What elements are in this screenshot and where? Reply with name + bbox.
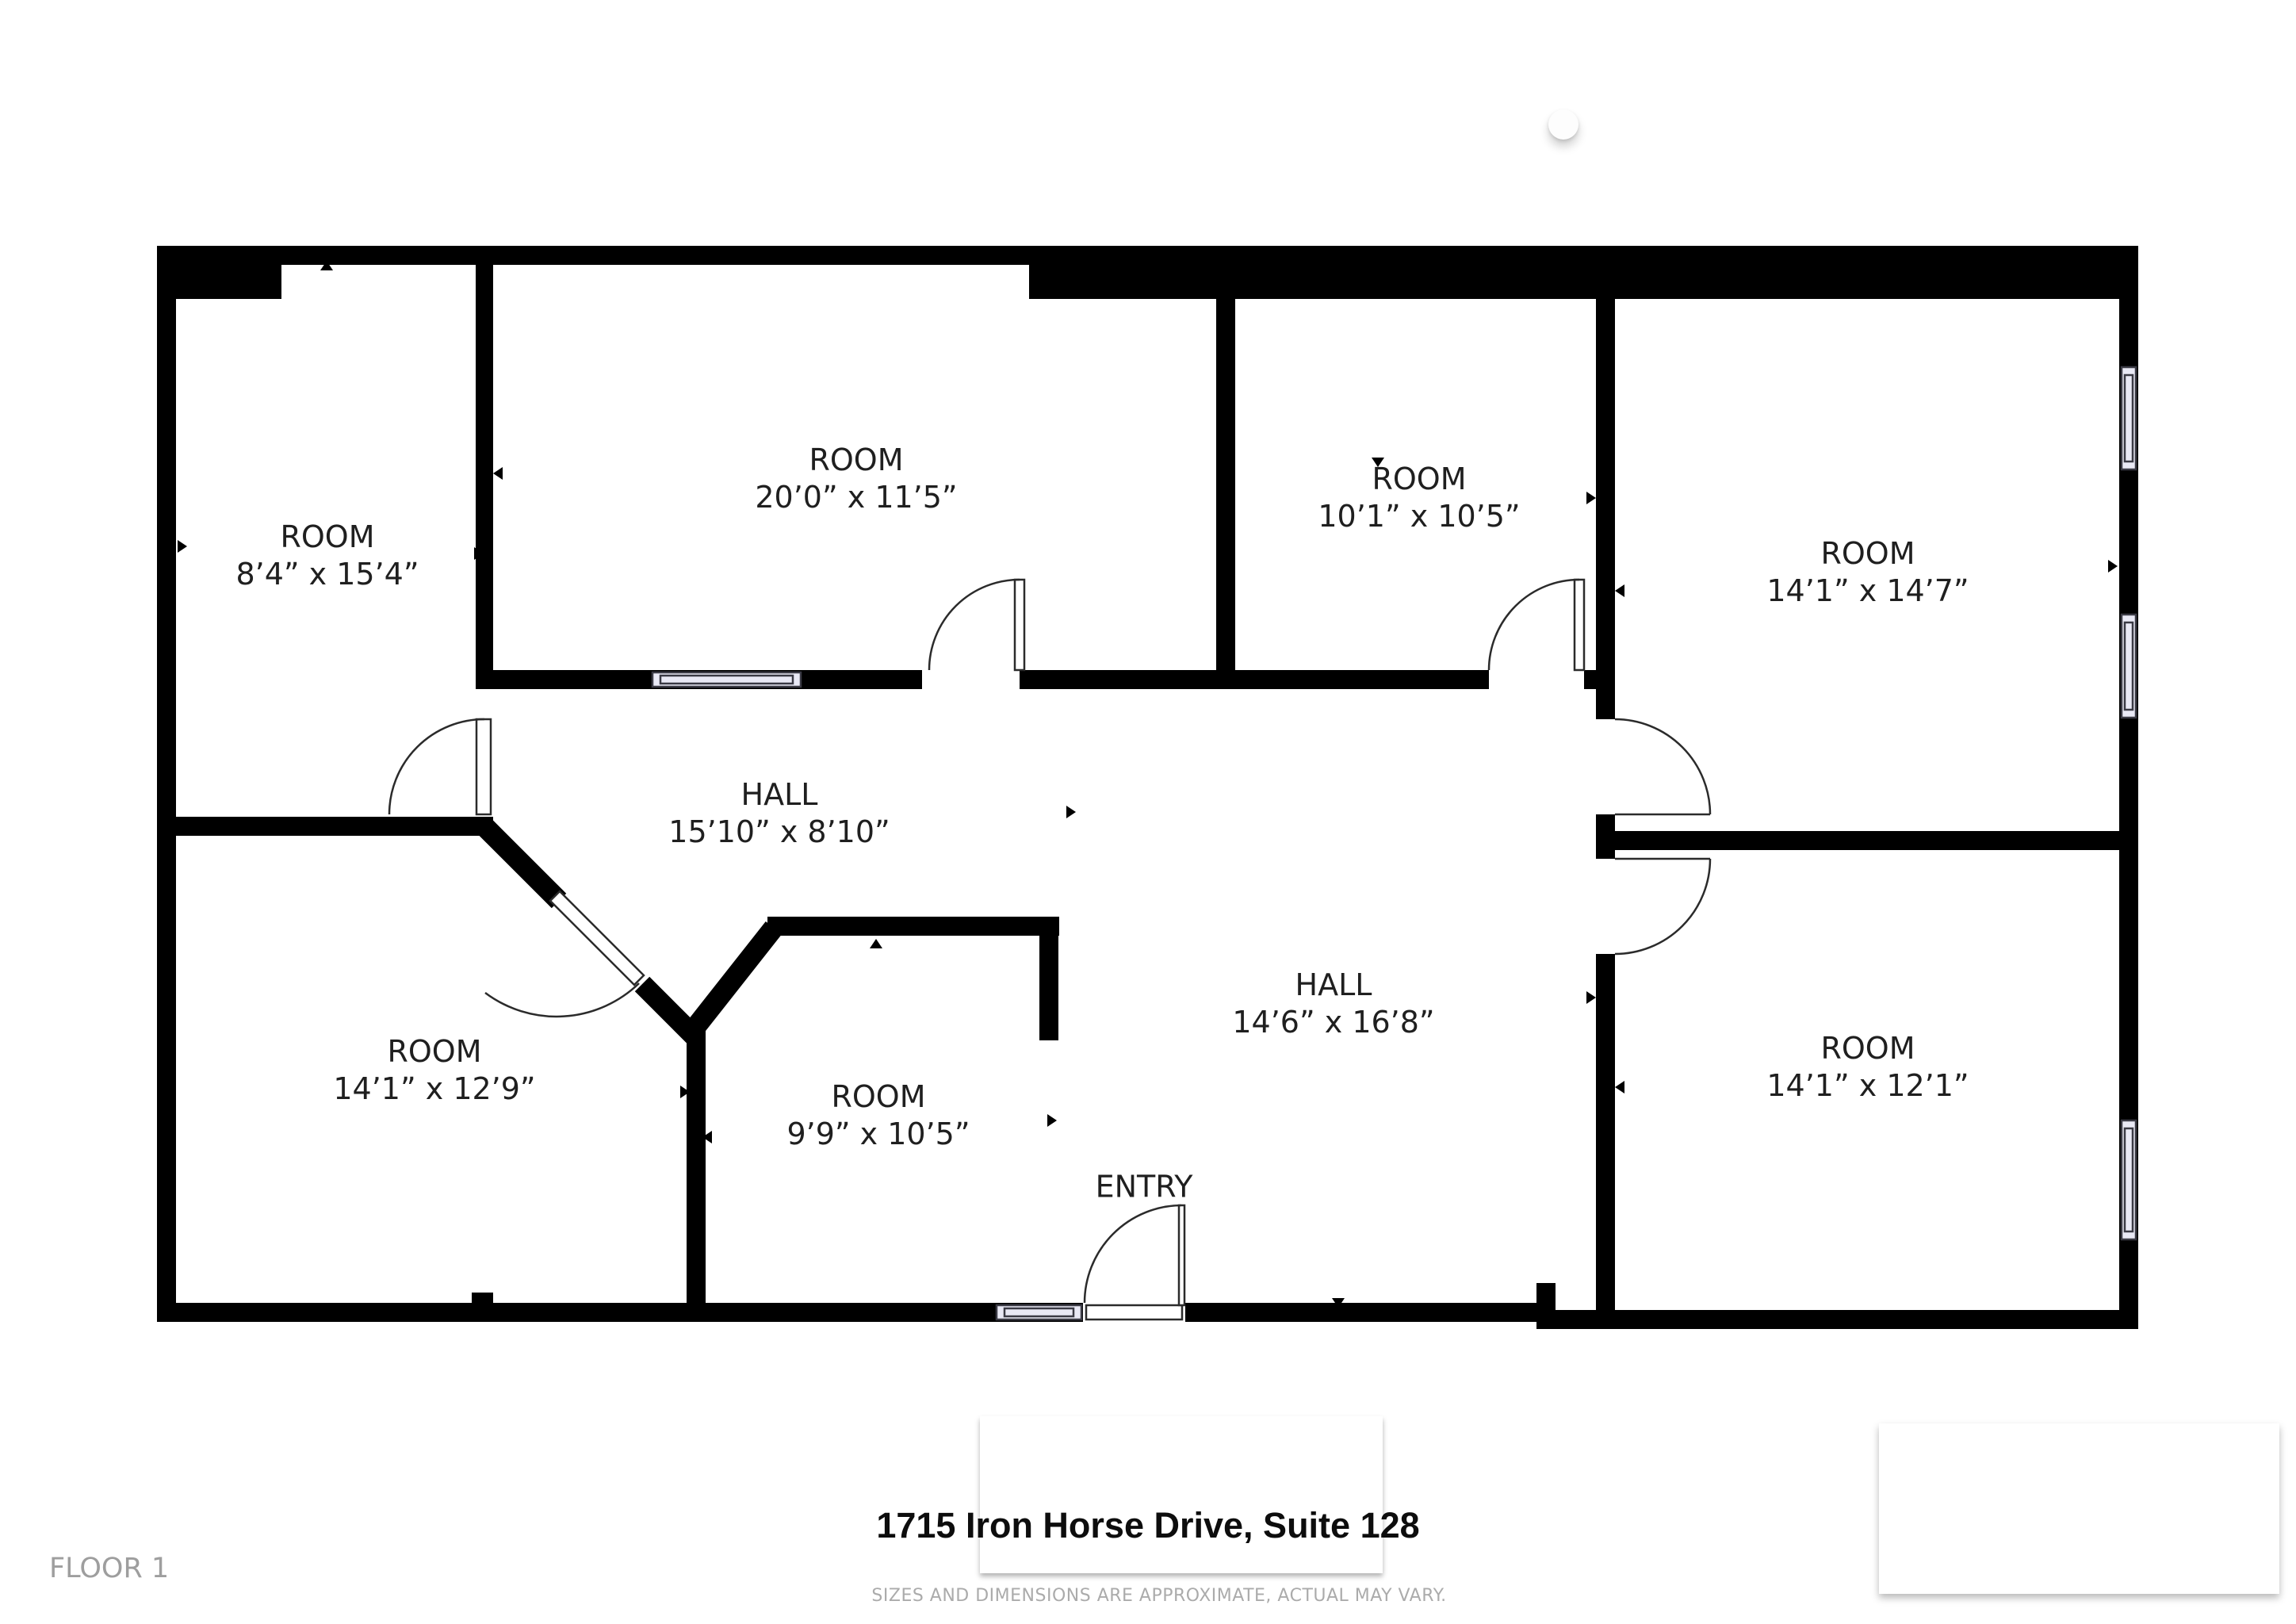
room-dims: 20’0” x 11’5”	[755, 479, 957, 516]
room-label-bottom-middle: ROOM 9’9” x 10’5”	[786, 1078, 970, 1153]
room-dims: 14’1” x 12’1”	[1766, 1067, 1969, 1105]
door-icon	[485, 891, 644, 1017]
room-label-top-right: ROOM 14’1” x 14’7”	[1766, 535, 1969, 610]
entry-label: ENTRY	[1096, 1169, 1193, 1206]
room-name: ROOM	[1318, 461, 1520, 498]
tick-markers	[178, 261, 2118, 1308]
room-label-top-center: ROOM 10’1” x 10’5”	[1318, 461, 1520, 535]
room-dims: 14’6” x 16’8”	[1232, 1004, 1434, 1041]
door-icon	[1489, 580, 1584, 670]
door-icon	[389, 719, 491, 814]
room-label-top-left: ROOM 8’4” x 15’4”	[235, 519, 419, 593]
room-label-bottom-right: ROOM 14’1” x 12’1”	[1766, 1030, 1969, 1105]
room-name: ROOM	[1766, 535, 1969, 573]
room-name: HALL	[1232, 967, 1434, 1004]
floorplan-page: ROOM 8’4” x 15’4” ROOM 20’0” x 11’5” ROO…	[0, 0, 2296, 1624]
compass-marker-icon[interactable]	[1548, 109, 1578, 140]
room-name: ENTRY	[1096, 1169, 1193, 1206]
disclaimer-text: SIZES AND DIMENSIONS ARE APPROXIMATE, AC…	[0, 1586, 2296, 1606]
room-name: HALL	[668, 776, 890, 814]
door-icon	[929, 580, 1024, 670]
door-icon	[1615, 859, 1710, 954]
floor-label[interactable]: FLOOR 1	[49, 1553, 169, 1584]
room-name: ROOM	[786, 1078, 970, 1116]
room-label-top-middle: ROOM 20’0” x 11’5”	[755, 442, 957, 516]
room-name: ROOM	[333, 1033, 535, 1071]
room-name: ROOM	[755, 442, 957, 479]
room-dims: 15’10” x 8’10”	[668, 814, 890, 851]
room-dims: 10’1” x 10’5”	[1318, 498, 1520, 535]
address-title: 1715 Iron Horse Drive, Suite 128	[0, 1505, 2296, 1546]
walls	[157, 246, 2138, 1329]
room-name: ROOM	[1766, 1030, 1969, 1067]
address-panel	[980, 1416, 1383, 1573]
hall-lower-label: HALL 14’6” x 16’8”	[1232, 967, 1434, 1041]
floorplan-drawing	[0, 0, 2296, 1624]
room-label-bottom-left: ROOM 14’1” x 12’9”	[333, 1033, 535, 1108]
hall-upper-label: HALL 15’10” x 8’10”	[668, 776, 890, 851]
room-name: ROOM	[235, 519, 419, 556]
room-dims: 8’4” x 15’4”	[235, 556, 419, 593]
room-dims: 9’9” x 10’5”	[786, 1116, 970, 1153]
door-icon	[1615, 719, 1710, 814]
room-dims: 14’1” x 14’7”	[1766, 573, 1969, 610]
room-dims: 14’1” x 12’9”	[333, 1071, 535, 1108]
